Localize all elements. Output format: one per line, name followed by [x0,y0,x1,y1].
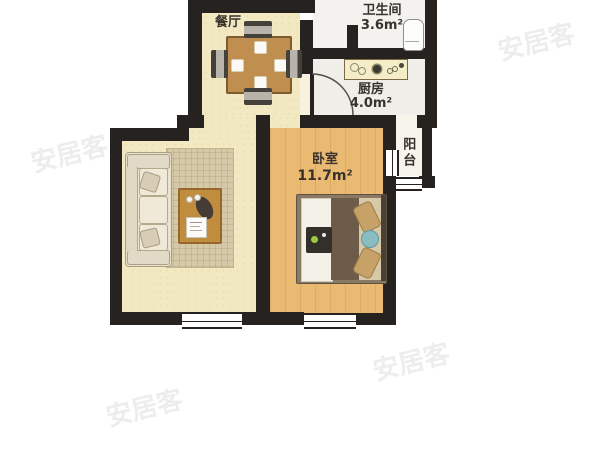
wall [188,0,202,118]
watermark: 安居客 [494,13,579,68]
living-room-window [182,312,242,329]
watermark: 安居客 [102,379,187,434]
bed [296,194,387,284]
wall [110,128,122,325]
toilet-tank [405,41,419,49]
room-area-kitchen: 4.0m² [340,97,402,111]
kitchen-counter [344,59,408,80]
sofa-cushion [139,196,168,224]
sofa [125,152,172,267]
bed-tray [306,227,332,253]
sofa-armrest [127,250,170,265]
spice-dot [399,63,404,68]
cup [186,196,193,203]
plate [231,59,244,72]
wall [242,312,304,325]
knob-icon [392,66,398,72]
dining-chair [244,88,272,105]
room-label-dining: 餐厅 [206,16,250,30]
bedroom-balcony-window [384,150,399,176]
burner-icon [373,65,381,73]
wall [256,115,270,313]
watermark: 安居客 [27,125,112,180]
dining-chair [286,50,302,78]
sink-icon [358,67,366,75]
coffee-table [178,188,222,244]
room-label-bathroom: 卫生间 [352,4,412,18]
tray-green-dot [311,236,318,243]
floorplan: 餐厅 卫生间 3.6m² 厨房 4.0m² 卧室 11.7m² 阳台 安居客 安… [0,0,600,450]
bed-round-cushion [361,230,379,248]
bedroom-doorway-floor [270,115,300,128]
room-label-bedroom: 卧室 [296,153,354,167]
dining-chair [211,50,228,78]
room-living-floor [189,128,256,141]
cup [194,194,201,201]
wall [188,0,315,13]
balcony-window [396,177,422,191]
bedroom-window [304,313,356,329]
room-label-balcony: 阳台 [400,131,416,175]
balcony-door-gap [396,115,417,128]
wall [417,115,437,128]
wall [425,0,437,115]
room-dining-floor [202,115,256,128]
room-area-bathroom: 3.6m² [352,19,412,33]
wall [110,312,182,325]
plate [254,41,267,54]
watermark: 安居客 [369,333,454,388]
sofa-back [126,167,138,251]
dining-table [226,36,292,94]
magazine [186,217,207,238]
room-area-bedroom: 11.7m² [292,169,358,184]
tray-white-dot [322,233,326,237]
bed-headboard [381,195,386,281]
